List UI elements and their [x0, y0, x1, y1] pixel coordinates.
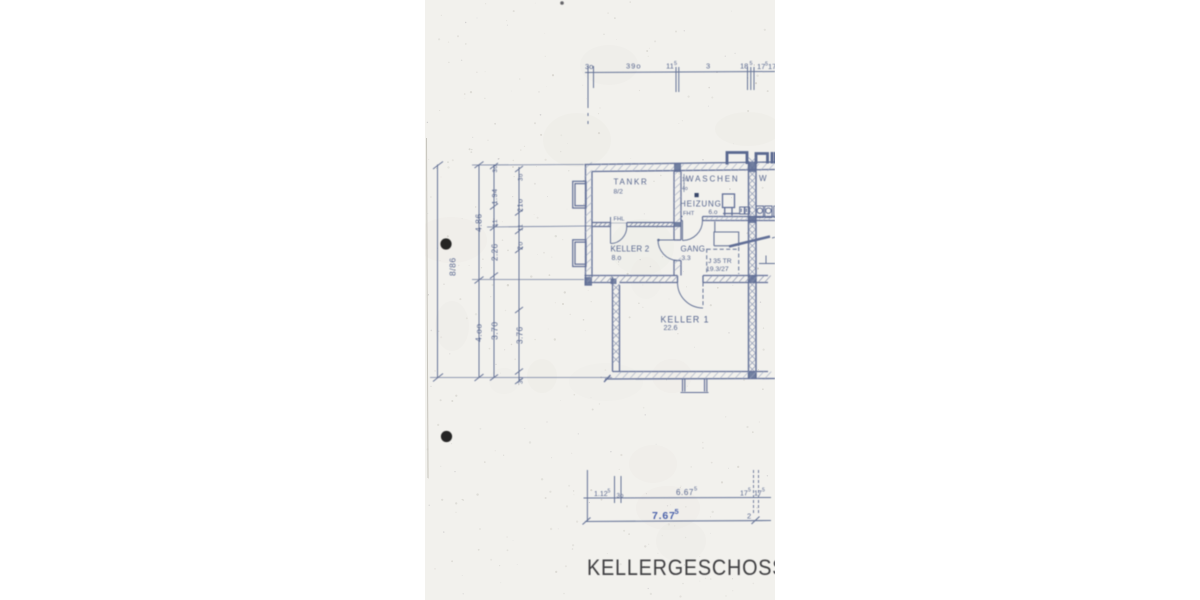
svg-text:5: 5 — [762, 488, 765, 494]
svg-text:KELLER 2: KELLER 2 — [611, 245, 650, 254]
svg-text:5: 5 — [675, 507, 679, 516]
svg-text:11: 11 — [519, 224, 525, 231]
svg-text:7.67: 7.67 — [652, 510, 676, 522]
svg-text:5: 5 — [694, 487, 697, 493]
svg-text:3.3: 3.3 — [682, 255, 691, 262]
svg-text:FHL: FHL — [614, 217, 626, 223]
svg-text:3.70: 3.70 — [490, 321, 500, 340]
svg-text:8/2: 8/2 — [614, 189, 624, 196]
svg-text:8/86: 8/86 — [448, 257, 458, 276]
svg-text:6.67: 6.67 — [676, 488, 694, 497]
svg-text:GANG: GANG — [681, 245, 706, 254]
svg-text:W: W — [759, 174, 767, 183]
svg-text:4.oo: 4.oo — [474, 323, 484, 342]
svg-text:3.76: 3.76 — [516, 326, 525, 344]
svg-text:3o: 3o — [493, 165, 499, 173]
svg-text:FHT: FHT — [683, 211, 695, 217]
svg-text:2: 2 — [747, 512, 751, 521]
svg-text:5: 5 — [608, 489, 611, 495]
svg-text:J 35 TR: J 35 TR — [708, 258, 732, 265]
svg-text:TANKR: TANKR — [614, 178, 649, 187]
svg-text:5: 5 — [674, 61, 677, 67]
svg-text:5: 5 — [750, 61, 753, 67]
svg-text:3: 3 — [706, 62, 710, 71]
svg-text:21o: 21o — [516, 199, 525, 213]
svg-text:19.3/27: 19.3/27 — [706, 266, 729, 273]
svg-text:1.12: 1.12 — [594, 491, 608, 498]
svg-text:6.o: 6.o — [709, 209, 718, 216]
svg-text:KELLERGESCHOSS: KELLERGESCHOSS — [587, 556, 786, 580]
svg-text:8: 8 — [776, 62, 779, 68]
svg-text:3o: 3o — [617, 493, 624, 500]
svg-text:1.94: 1.94 — [490, 189, 499, 205]
svg-text:3o: 3o — [519, 173, 525, 181]
svg-text:11: 11 — [666, 62, 674, 71]
svg-text:11: 11 — [492, 219, 499, 227]
svg-text:22.6: 22.6 — [664, 323, 678, 332]
svg-text:WASCHEN: WASCHEN — [686, 175, 740, 184]
svg-text:17: 17 — [740, 491, 748, 498]
svg-text:3o: 3o — [585, 62, 593, 71]
svg-text:17: 17 — [768, 62, 776, 71]
svg-text:39o: 39o — [626, 62, 642, 71]
svg-text:4.86: 4.86 — [474, 213, 484, 232]
svg-text:8.o: 8.o — [612, 255, 622, 262]
svg-text:4o: 4o — [682, 186, 688, 192]
svg-text:5: 5 — [748, 488, 751, 494]
svg-text:2.26: 2.26 — [491, 243, 500, 261]
svg-text:HEIZUNG: HEIZUNG — [680, 200, 722, 209]
svg-text:18: 18 — [740, 62, 748, 71]
svg-text:2o: 2o — [518, 241, 525, 250]
svg-text:17: 17 — [754, 491, 762, 498]
